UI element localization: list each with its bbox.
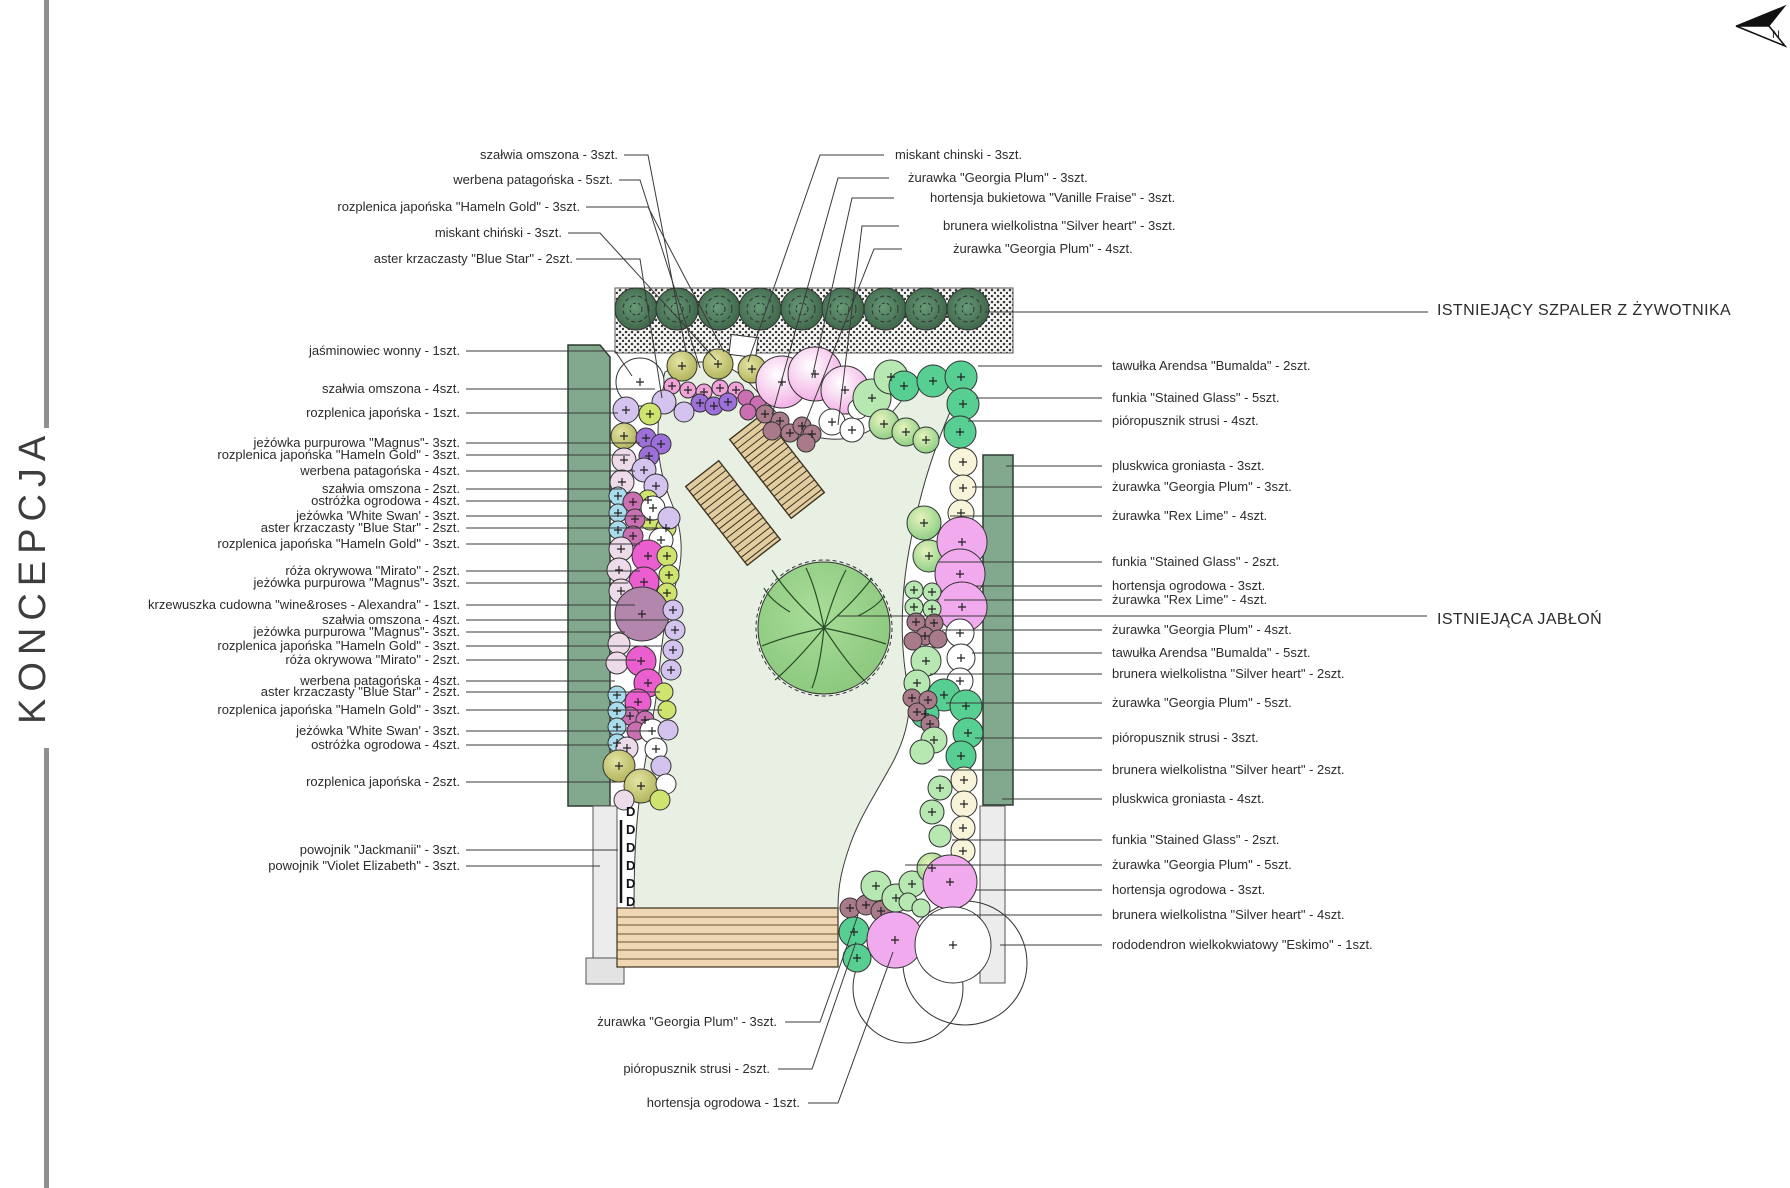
plant-label-left-22: ostróżka ogrodowa - 4szt. [311, 738, 460, 752]
plant-label-left-25: powojnik "Violet Elizabeth" - 3szt. [268, 859, 460, 873]
plant-label-right-18: hortensja ogrodowa - 3szt. [1112, 883, 1265, 897]
plant-label-left-24: powojnik "Jackmanii" - 3szt. [300, 843, 460, 857]
plant-label-left-21: jeżówka 'White Swan' - 3szt. [296, 724, 460, 738]
plant-label-left-5: werbena patagońska - 4szt. [300, 464, 460, 478]
plant-label-top_left-3: miskant chiński - 3szt. [435, 226, 562, 240]
plant-label-right-5: żurawka "Rex Lime" - 4szt. [1112, 509, 1267, 523]
plant-label-bottom-0: żurawka "Georgia Plum" - 3szt. [597, 1015, 777, 1029]
plant-label-left-23: rozplenica japońska - 2szt. [306, 775, 460, 789]
plant-label-left-0: jaśminowiec wonny - 1szt. [309, 344, 460, 358]
plant-label-right-7: hortensja ogrodowa - 3szt. [1112, 579, 1265, 593]
plant-label-top_left-4: aster krzaczasty "Blue Star" - 2szt. [374, 252, 573, 266]
plant-label-top_left-1: werbena patagońska - 5szt. [453, 173, 613, 187]
plant-label-bottom-1: pióropusznik strusi - 2szt. [623, 1062, 770, 1076]
plant-label-top_right-0: miskant chinski - 3szt. [895, 148, 1022, 162]
garden-plan: circle{stroke:#333;stroke-width:1;} .w{f… [0, 0, 1790, 1188]
svg-text:D: D [626, 822, 635, 837]
plant-label-left-10: rozplenica japońska "Hameln Gold" - 3szt… [217, 537, 460, 551]
plant-label-top_left-0: szałwia omszona - 3szt. [480, 148, 618, 162]
plant-label-right-4: żurawka "Georgia Plum" - 3szt. [1112, 480, 1292, 494]
caption-existing-hedge: ISTNIEJĄCY SZPALER Z ŻYWOTNIKA [1437, 303, 1731, 319]
plant-label-top_right-1: żurawka "Georgia Plum" - 3szt. [908, 171, 1088, 185]
plant-label-left-19: aster krzaczasty "Blue Star" - 2szt. [261, 685, 460, 699]
plant-label-right-11: brunera wielkolistna "Silver heart" - 2s… [1112, 667, 1345, 681]
plant-label-right-2: pióropusznik strusi - 4szt. [1112, 414, 1259, 428]
north-arrow-icon: N [1736, 6, 1785, 46]
plant-label-right-9: żurawka "Georgia Plum" - 4szt. [1112, 623, 1292, 637]
caption-existing-apple-tree: ISTNIEJĄCA JABŁOŃ [1437, 612, 1602, 628]
plant-label-right-14: brunera wielkolistna "Silver heart" - 2s… [1112, 763, 1345, 777]
plant-label-right-13: pióropusznik strusi - 3szt. [1112, 731, 1259, 745]
plant-label-left-2: rozplenica japońska - 1szt. [306, 406, 460, 420]
plant-label-left-20: rozplenica japońska "Hameln Gold" - 3szt… [217, 703, 460, 717]
plant-label-right-19: brunera wielkolistna "Silver heart" - 4s… [1112, 908, 1345, 922]
plant-label-right-15: pluskwica groniasta - 4szt. [1112, 792, 1264, 806]
plant-label-left-1: szałwia omszona - 4szt. [322, 382, 460, 396]
svg-text:D: D [626, 840, 635, 855]
plant-label-left-15: jeżówka purpurowa "Magnus"- 3szt. [254, 625, 461, 639]
plant-label-right-17: żurawka "Georgia Plum" - 5szt. [1112, 858, 1292, 872]
plant-label-right-8: żurawka "Rex Lime" - 4szt. [1112, 593, 1267, 607]
svg-text:D: D [626, 858, 635, 873]
plant-label-right-3: pluskwica groniasta - 3szt. [1112, 459, 1264, 473]
svg-text:D: D [626, 804, 635, 819]
plant-label-left-12: jeżówka purpurowa "Magnus"- 3szt. [254, 576, 461, 590]
plant-label-left-17: róża okrywowa "Mirato" - 2szt. [285, 653, 460, 667]
svg-text:D: D [626, 894, 635, 909]
plant-label-right-10: tawułka Arendsa "Bumalda" - 5szt. [1112, 646, 1311, 660]
deck [617, 908, 838, 967]
plant-label-right-12: żurawka "Georgia Plum" - 5szt. [1112, 696, 1292, 710]
plant-label-top_left-2: rozplenica japońska "Hameln Gold" - 3szt… [337, 200, 580, 214]
plant-label-top_right-3: brunera wielkolistna "Silver heart" - 3s… [943, 219, 1176, 233]
plant-label-right-6: funkia "Stained Glass" - 2szt. [1112, 555, 1279, 569]
left-bed [568, 345, 610, 806]
plant-label-left-4: rozplenica japońska "Hameln Gold" - 3szt… [217, 448, 460, 462]
plant-label-top_right-2: hortensja bukietowa "Vanille Fraise" - 3… [930, 191, 1175, 205]
plant-label-right-20: rododendron wielkokwiatowy "Eskimo" - 1s… [1112, 938, 1373, 952]
plant-label-right-16: funkia "Stained Glass" - 2szt. [1112, 833, 1279, 847]
plant-label-right-1: funkia "Stained Glass" - 5szt. [1112, 391, 1279, 405]
plant-label-left-13: krzewuszka cudowna "wine&roses - Alexand… [148, 598, 460, 612]
garden-concept-sheet: KONCEPCJA circle{stroke:#333;stroke-widt… [0, 0, 1790, 1188]
clematis-trellis: DD DD DD [621, 804, 635, 909]
north-letter: N [1772, 29, 1780, 41]
plant-label-left-7: ostróżka ogrodowa - 4szt. [311, 494, 460, 508]
svg-text:D: D [626, 876, 635, 891]
plant-label-right-0: tawułka Arendsa "Bumalda" - 2szt. [1112, 359, 1311, 373]
plant-label-left-16: rozplenica japońska "Hameln Gold" - 3szt… [217, 639, 460, 653]
plant-label-bottom-2: hortensja ogrodowa - 1szt. [647, 1096, 800, 1110]
plant-label-left-9: aster krzaczasty "Blue Star" - 2szt. [261, 521, 460, 535]
plant-label-top_right-4: żurawka "Georgia Plum" - 4szt. [953, 242, 1133, 256]
